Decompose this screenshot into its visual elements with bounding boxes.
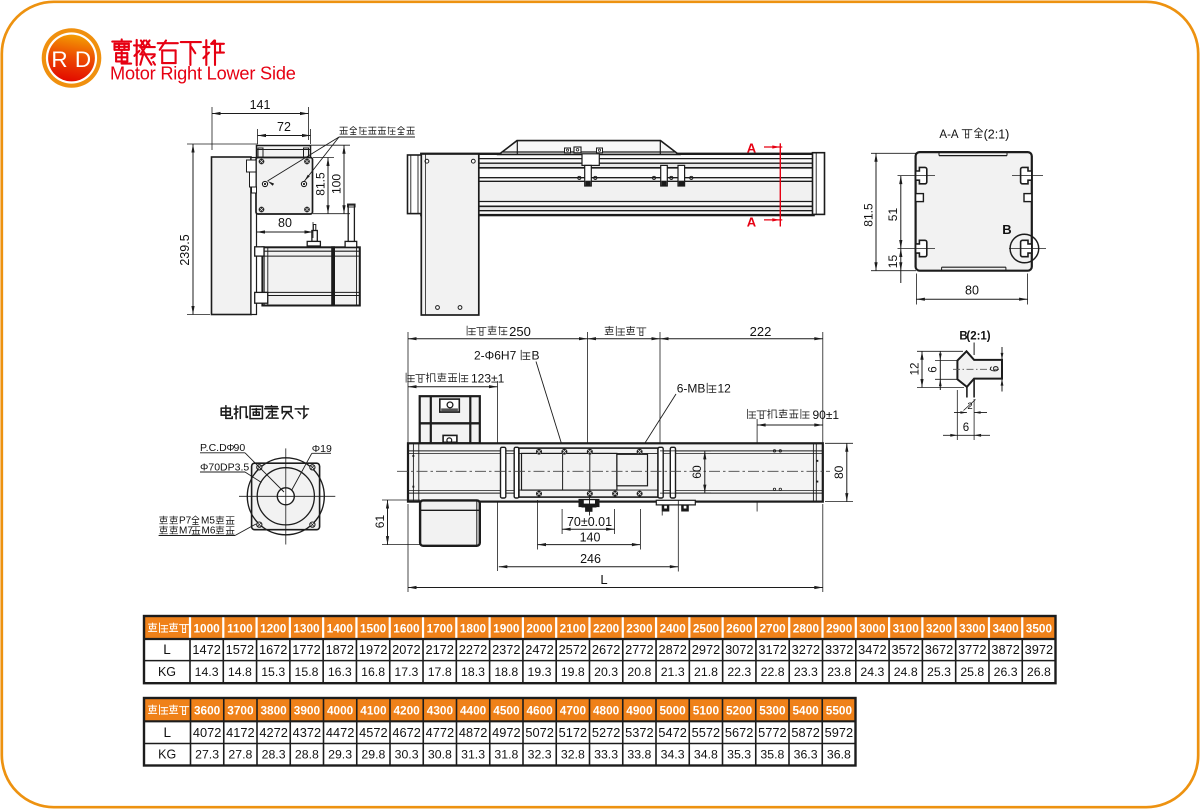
svg-text:5100: 5100 bbox=[693, 703, 720, 717]
svg-text:4000: 4000 bbox=[327, 703, 354, 717]
svg-text:16.3: 16.3 bbox=[328, 665, 352, 679]
svg-text:18.3: 18.3 bbox=[461, 665, 485, 679]
svg-text:2300: 2300 bbox=[626, 621, 653, 635]
svg-text:1000: 1000 bbox=[193, 621, 220, 635]
svg-text:4272: 4272 bbox=[259, 725, 287, 740]
svg-text:1872: 1872 bbox=[326, 642, 354, 657]
svg-text:25.8: 25.8 bbox=[960, 665, 984, 679]
svg-text:15.3: 15.3 bbox=[261, 665, 285, 679]
svg-text:80: 80 bbox=[278, 216, 292, 230]
svg-text:140: 140 bbox=[580, 531, 601, 545]
svg-text:3072: 3072 bbox=[725, 642, 753, 657]
svg-text:33.3: 33.3 bbox=[594, 748, 618, 762]
svg-text:31.3: 31.3 bbox=[461, 748, 485, 762]
svg-text:M6: M6 bbox=[202, 526, 216, 537]
svg-text:A: A bbox=[747, 214, 757, 229]
svg-text:21.8: 21.8 bbox=[694, 665, 718, 679]
svg-text:33.8: 33.8 bbox=[627, 748, 651, 762]
svg-text:4200: 4200 bbox=[393, 703, 420, 717]
svg-text:2572: 2572 bbox=[559, 642, 587, 657]
svg-text:3772: 3772 bbox=[958, 642, 986, 657]
svg-text:3900: 3900 bbox=[294, 703, 321, 717]
svg-text:35.8: 35.8 bbox=[760, 748, 784, 762]
svg-text:1672: 1672 bbox=[259, 642, 287, 657]
svg-text:Motor Right Lower Side: Motor Right Lower Side bbox=[110, 64, 296, 84]
svg-text:P.C.D: P.C.D bbox=[200, 442, 227, 454]
svg-text:4600: 4600 bbox=[526, 703, 553, 717]
svg-text:5572: 5572 bbox=[692, 725, 720, 740]
svg-text:4172: 4172 bbox=[226, 725, 254, 740]
svg-text:246: 246 bbox=[580, 552, 601, 566]
svg-text:90: 90 bbox=[234, 442, 246, 454]
svg-text:6: 6 bbox=[928, 366, 940, 372]
svg-text:5400: 5400 bbox=[792, 703, 819, 717]
svg-text:2172: 2172 bbox=[425, 642, 453, 657]
svg-text:61: 61 bbox=[373, 515, 387, 529]
svg-text:2000: 2000 bbox=[526, 621, 553, 635]
svg-text:2900: 2900 bbox=[826, 621, 853, 635]
svg-text:15.8: 15.8 bbox=[295, 665, 319, 679]
svg-text:5272: 5272 bbox=[592, 725, 620, 740]
svg-text:70±0.01: 70±0.01 bbox=[567, 515, 612, 529]
svg-text:4772: 4772 bbox=[426, 725, 454, 740]
svg-text:4572: 4572 bbox=[359, 725, 387, 740]
svg-text:2700: 2700 bbox=[759, 621, 786, 635]
svg-text:1300: 1300 bbox=[293, 621, 320, 635]
svg-text:2500: 2500 bbox=[693, 621, 720, 635]
svg-text:72: 72 bbox=[277, 120, 291, 134]
svg-text:28.8: 28.8 bbox=[295, 748, 319, 762]
svg-text:35.3: 35.3 bbox=[727, 748, 751, 762]
svg-text:3000: 3000 bbox=[859, 621, 886, 635]
svg-text:3972: 3972 bbox=[1025, 642, 1053, 657]
svg-text:28.3: 28.3 bbox=[262, 748, 286, 762]
svg-text:23.3: 23.3 bbox=[794, 665, 818, 679]
svg-text:2072: 2072 bbox=[392, 642, 420, 657]
svg-text:(2:1): (2:1) bbox=[984, 128, 1010, 142]
svg-text:2100: 2100 bbox=[560, 621, 587, 635]
svg-text:123±1: 123±1 bbox=[471, 372, 505, 386]
svg-text:2772: 2772 bbox=[625, 642, 653, 657]
svg-text:M7: M7 bbox=[179, 526, 193, 537]
svg-text:1472: 1472 bbox=[192, 642, 220, 657]
svg-text:KG: KG bbox=[158, 665, 176, 679]
svg-text:32.3: 32.3 bbox=[528, 748, 552, 762]
svg-text:4072: 4072 bbox=[193, 725, 221, 740]
svg-text:KG: KG bbox=[158, 748, 176, 762]
svg-text:4900: 4900 bbox=[626, 703, 653, 717]
svg-text:3600: 3600 bbox=[194, 703, 221, 717]
svg-text:239.5: 239.5 bbox=[178, 234, 192, 265]
svg-text:B: B bbox=[532, 349, 540, 363]
svg-text:5672: 5672 bbox=[725, 725, 753, 740]
svg-text:1800: 1800 bbox=[460, 621, 487, 635]
svg-text:2272: 2272 bbox=[459, 642, 487, 657]
svg-text:34.3: 34.3 bbox=[661, 748, 685, 762]
svg-text:3572: 3572 bbox=[891, 642, 919, 657]
svg-text:4400: 4400 bbox=[460, 703, 487, 717]
svg-text:5500: 5500 bbox=[826, 703, 853, 717]
svg-text:14.8: 14.8 bbox=[228, 665, 252, 679]
svg-text:3300: 3300 bbox=[959, 621, 986, 635]
svg-text:3200: 3200 bbox=[926, 621, 953, 635]
svg-text:L: L bbox=[163, 642, 171, 657]
svg-text:5372: 5372 bbox=[625, 725, 653, 740]
svg-text:30.3: 30.3 bbox=[395, 748, 419, 762]
svg-text:4100: 4100 bbox=[360, 703, 387, 717]
svg-text:19.3: 19.3 bbox=[528, 665, 552, 679]
svg-text:A-A: A-A bbox=[939, 129, 959, 141]
svg-text:5972: 5972 bbox=[825, 725, 853, 740]
svg-text:2-Φ6H7: 2-Φ6H7 bbox=[474, 349, 517, 363]
svg-text:22.8: 22.8 bbox=[761, 665, 785, 679]
svg-text:12: 12 bbox=[718, 382, 732, 396]
svg-text:4872: 4872 bbox=[459, 725, 487, 740]
svg-text:4672: 4672 bbox=[392, 725, 420, 740]
svg-text:5072: 5072 bbox=[525, 725, 553, 740]
svg-text:3400: 3400 bbox=[992, 621, 1019, 635]
svg-text:2400: 2400 bbox=[660, 621, 687, 635]
svg-text:4300: 4300 bbox=[427, 703, 454, 717]
svg-text:1200: 1200 bbox=[260, 621, 287, 635]
svg-text:4700: 4700 bbox=[560, 703, 587, 717]
svg-text:36.3: 36.3 bbox=[794, 748, 818, 762]
svg-text:27.8: 27.8 bbox=[228, 748, 252, 762]
svg-text:B: B bbox=[1002, 222, 1011, 237]
svg-text:100: 100 bbox=[330, 174, 344, 194]
svg-text:2372: 2372 bbox=[492, 642, 520, 657]
svg-text:19.8: 19.8 bbox=[561, 665, 585, 679]
svg-text:23.8: 23.8 bbox=[827, 665, 851, 679]
svg-text:3872: 3872 bbox=[991, 642, 1019, 657]
svg-text:2200: 2200 bbox=[593, 621, 620, 635]
svg-text:2972: 2972 bbox=[692, 642, 720, 657]
svg-text:L: L bbox=[600, 572, 607, 587]
svg-text:90±1: 90±1 bbox=[813, 408, 840, 422]
svg-text:222: 222 bbox=[750, 324, 772, 339]
svg-text:(2:1): (2:1) bbox=[966, 331, 990, 343]
svg-text:81.5: 81.5 bbox=[314, 172, 328, 196]
svg-text:4972: 4972 bbox=[492, 725, 520, 740]
svg-text:4500: 4500 bbox=[493, 703, 520, 717]
svg-text:1572: 1572 bbox=[226, 642, 254, 657]
svg-text:5772: 5772 bbox=[758, 725, 786, 740]
svg-text:1600: 1600 bbox=[393, 621, 420, 635]
svg-text:1900: 1900 bbox=[493, 621, 520, 635]
svg-text:24.3: 24.3 bbox=[860, 665, 884, 679]
svg-text:80: 80 bbox=[832, 465, 846, 479]
svg-text:36.8: 36.8 bbox=[827, 748, 851, 762]
svg-text:6: 6 bbox=[963, 422, 969, 434]
svg-text:3172: 3172 bbox=[758, 642, 786, 657]
svg-text:12: 12 bbox=[910, 363, 922, 376]
svg-text:250: 250 bbox=[509, 324, 531, 339]
svg-text:2800: 2800 bbox=[793, 621, 820, 635]
svg-text:3100: 3100 bbox=[893, 621, 920, 635]
svg-text:20.8: 20.8 bbox=[627, 665, 651, 679]
svg-text:5472: 5472 bbox=[658, 725, 686, 740]
svg-text:4800: 4800 bbox=[593, 703, 620, 717]
svg-text:2472: 2472 bbox=[525, 642, 553, 657]
svg-text:27.3: 27.3 bbox=[195, 748, 219, 762]
svg-text:4372: 4372 bbox=[293, 725, 321, 740]
svg-text:3672: 3672 bbox=[925, 642, 953, 657]
svg-text:3700: 3700 bbox=[227, 703, 254, 717]
svg-text:1700: 1700 bbox=[427, 621, 454, 635]
svg-text:26.8: 26.8 bbox=[1027, 665, 1051, 679]
svg-text:16.8: 16.8 bbox=[361, 665, 385, 679]
svg-text:1972: 1972 bbox=[359, 642, 387, 657]
svg-text:5872: 5872 bbox=[791, 725, 819, 740]
svg-text:1400: 1400 bbox=[327, 621, 354, 635]
svg-text:20.3: 20.3 bbox=[594, 665, 618, 679]
svg-text:R D: R D bbox=[51, 47, 91, 72]
svg-text:1100: 1100 bbox=[227, 621, 253, 635]
svg-text:A: A bbox=[747, 141, 757, 156]
svg-text:17.8: 17.8 bbox=[428, 665, 452, 679]
svg-text:3272: 3272 bbox=[792, 642, 820, 657]
svg-text:51: 51 bbox=[886, 208, 900, 222]
svg-text:5200: 5200 bbox=[726, 703, 753, 717]
svg-text:2672: 2672 bbox=[592, 642, 620, 657]
svg-text:80: 80 bbox=[965, 284, 979, 298]
svg-text:32.8: 32.8 bbox=[561, 748, 585, 762]
svg-text:6: 6 bbox=[990, 366, 1002, 372]
svg-text:29.3: 29.3 bbox=[328, 748, 352, 762]
svg-text:4472: 4472 bbox=[326, 725, 354, 740]
svg-text:5172: 5172 bbox=[559, 725, 587, 740]
svg-text:5300: 5300 bbox=[759, 703, 786, 717]
svg-text:29.8: 29.8 bbox=[361, 748, 385, 762]
svg-text:1772: 1772 bbox=[292, 642, 320, 657]
svg-text:17.3: 17.3 bbox=[394, 665, 418, 679]
svg-text:26.3: 26.3 bbox=[994, 665, 1018, 679]
svg-text:31.8: 31.8 bbox=[494, 748, 518, 762]
svg-text:18.8: 18.8 bbox=[494, 665, 518, 679]
svg-text:5000: 5000 bbox=[659, 703, 686, 717]
svg-text:15: 15 bbox=[886, 255, 900, 269]
svg-text:30.8: 30.8 bbox=[428, 748, 452, 762]
svg-text:3800: 3800 bbox=[260, 703, 287, 717]
svg-text:141: 141 bbox=[250, 98, 271, 112]
svg-text:3500: 3500 bbox=[1026, 621, 1053, 635]
svg-text:81.5: 81.5 bbox=[862, 203, 876, 227]
svg-text:25.3: 25.3 bbox=[927, 665, 951, 679]
svg-text:21.3: 21.3 bbox=[661, 665, 685, 679]
svg-text:14.3: 14.3 bbox=[195, 665, 219, 679]
svg-text:34.8: 34.8 bbox=[694, 748, 718, 762]
svg-text:22.3: 22.3 bbox=[727, 665, 751, 679]
svg-text:L: L bbox=[163, 725, 171, 740]
svg-text:2600: 2600 bbox=[726, 621, 753, 635]
svg-text:60: 60 bbox=[690, 465, 704, 479]
svg-text:3372: 3372 bbox=[825, 642, 853, 657]
svg-text:1500: 1500 bbox=[360, 621, 387, 635]
svg-text:24.8: 24.8 bbox=[894, 665, 918, 679]
svg-text:2872: 2872 bbox=[658, 642, 686, 657]
svg-text:3472: 3472 bbox=[858, 642, 886, 657]
svg-text:6-MB: 6-MB bbox=[677, 382, 706, 396]
